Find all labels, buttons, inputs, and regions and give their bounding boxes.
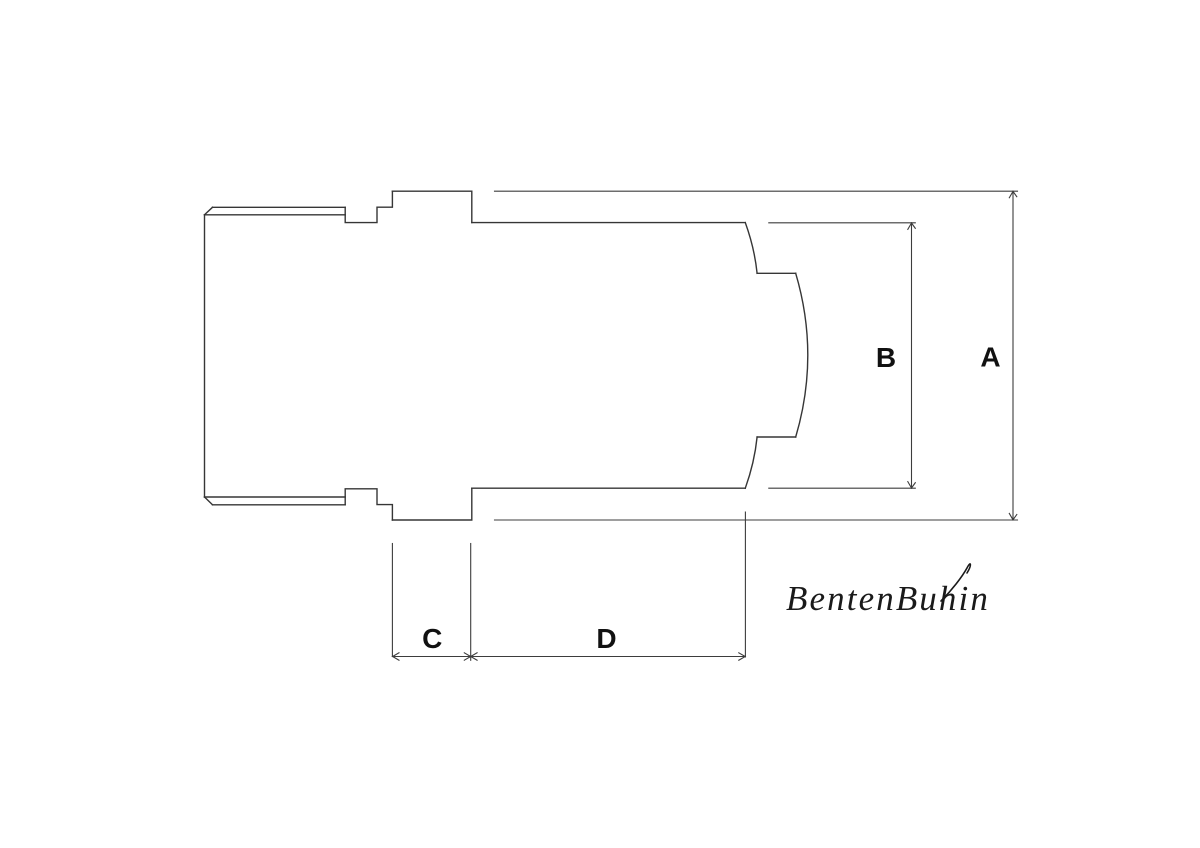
svg-text:BentenBuhin: BentenBuhin bbox=[786, 579, 990, 618]
svg-text:D: D bbox=[596, 623, 616, 654]
svg-text:C: C bbox=[422, 623, 442, 654]
svg-text:B: B bbox=[876, 342, 896, 373]
svg-text:A: A bbox=[980, 341, 1000, 372]
